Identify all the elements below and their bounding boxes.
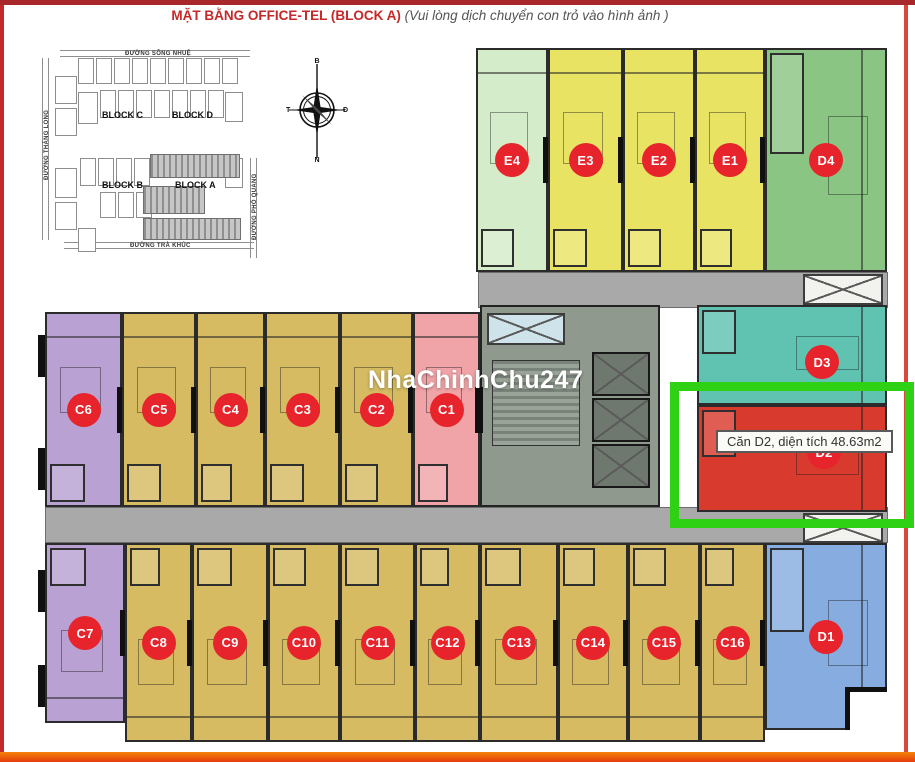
unit-bathroom bbox=[418, 464, 448, 502]
unit-c2[interactable]: C2 bbox=[340, 312, 413, 507]
unit-balcony-line bbox=[124, 336, 194, 338]
unit-label-badge: D4 bbox=[809, 143, 843, 177]
unit-e4[interactable]: E4 bbox=[476, 48, 548, 272]
unit-bathroom bbox=[50, 548, 86, 586]
unit-c5[interactable]: C5 bbox=[122, 312, 196, 507]
unit-label-badge: C2 bbox=[360, 393, 394, 427]
unit-bathroom bbox=[201, 464, 232, 502]
unit-c4[interactable]: C4 bbox=[196, 312, 265, 507]
unit-label-badge: C1 bbox=[430, 393, 464, 427]
unit-balcony-line bbox=[560, 716, 626, 718]
unit-c6[interactable]: C6 bbox=[45, 312, 122, 507]
unit-balcony-line bbox=[702, 716, 763, 718]
unit-balcony-line bbox=[47, 697, 123, 699]
unit-c16[interactable]: C16 bbox=[700, 543, 765, 742]
unit-label-badge: C13 bbox=[502, 626, 536, 660]
shaft-hatch bbox=[487, 313, 565, 345]
unit-label-badge: C8 bbox=[142, 626, 176, 660]
unit-bathroom bbox=[197, 548, 232, 586]
d1-notch bbox=[845, 687, 887, 730]
unit-c11[interactable]: C11 bbox=[340, 543, 415, 742]
unit-c3[interactable]: C3 bbox=[265, 312, 340, 507]
unit-label-badge: C14 bbox=[576, 626, 610, 660]
unit-label-badge: C11 bbox=[361, 626, 395, 660]
unit-c7[interactable]: C7 bbox=[45, 543, 125, 723]
unit-label-badge: C4 bbox=[214, 393, 248, 427]
unit-c13[interactable]: C13 bbox=[480, 543, 558, 742]
unit-c10[interactable]: C10 bbox=[268, 543, 340, 742]
unit-balcony-line bbox=[482, 716, 556, 718]
unit-bathroom bbox=[270, 464, 304, 502]
elevator-shaft bbox=[592, 352, 650, 396]
unit-bathroom bbox=[705, 548, 734, 586]
unit-bathroom bbox=[130, 548, 160, 586]
unit-label-badge: E4 bbox=[495, 143, 529, 177]
unit-label-badge: C12 bbox=[431, 626, 465, 660]
unit-label-badge: E1 bbox=[713, 143, 747, 177]
unit-label-badge: C5 bbox=[142, 393, 176, 427]
unit-label-badge: C15 bbox=[647, 626, 681, 660]
unit-highlight-box bbox=[670, 382, 914, 528]
unit-bathroom bbox=[633, 548, 666, 586]
unit-balcony-line bbox=[625, 72, 693, 74]
unit-label-badge: C16 bbox=[716, 626, 750, 660]
unit-balcony-line bbox=[478, 72, 546, 74]
unit-balcony-line bbox=[550, 72, 621, 74]
unit-bathroom bbox=[345, 548, 379, 586]
unit-balcony-line bbox=[267, 336, 338, 338]
unit-bathroom bbox=[700, 229, 732, 267]
unit-bathroom bbox=[553, 229, 587, 267]
unit-bathroom bbox=[420, 548, 449, 586]
unit-c14[interactable]: C14 bbox=[558, 543, 628, 742]
unit-balcony-line bbox=[198, 336, 263, 338]
unit-bathroom bbox=[50, 464, 85, 502]
unit-e2[interactable]: E2 bbox=[623, 48, 695, 272]
unit-bathroom bbox=[485, 548, 521, 586]
unit-balcony-line bbox=[342, 336, 411, 338]
unit-label-badge: E2 bbox=[642, 143, 676, 177]
elevator-shaft bbox=[592, 444, 650, 488]
unit-c9[interactable]: C9 bbox=[192, 543, 268, 742]
floorplan-page: MẶT BẰNG OFFICE-TEL (BLOCK A) (Vui lòng … bbox=[0, 0, 915, 762]
unit-label-badge: C10 bbox=[287, 626, 321, 660]
unit-label-badge: C6 bbox=[67, 393, 101, 427]
unit-balcony-line bbox=[697, 72, 763, 74]
elevator-shaft bbox=[592, 398, 650, 442]
unit-bathroom bbox=[273, 548, 306, 586]
unit-label-badge: C3 bbox=[286, 393, 320, 427]
unit-balcony-line bbox=[194, 716, 266, 718]
unit-c8[interactable]: C8 bbox=[125, 543, 192, 742]
unit-bathroom bbox=[628, 229, 661, 267]
watermark: NhaChinhChu247 bbox=[368, 366, 583, 395]
unit-tooltip: Căn D2, diện tích 48.63m2 bbox=[716, 430, 893, 453]
unit-bathroom bbox=[563, 548, 595, 586]
unit-balcony-line bbox=[342, 716, 413, 718]
unit-balcony-line bbox=[127, 716, 190, 718]
unit-bathroom bbox=[127, 464, 161, 502]
unit-label-badge: C9 bbox=[213, 626, 247, 660]
unit-label-badge: D1 bbox=[809, 620, 843, 654]
shaft-hatch bbox=[803, 274, 883, 305]
unit-c1[interactable]: C1 bbox=[413, 312, 480, 507]
unit-e1[interactable]: E1 bbox=[695, 48, 765, 272]
unit-bathroom bbox=[702, 310, 736, 354]
unit-e3[interactable]: E3 bbox=[548, 48, 623, 272]
unit-balcony-line bbox=[417, 716, 478, 718]
unit-bathroom bbox=[770, 53, 804, 154]
unit-bathroom bbox=[481, 229, 514, 267]
unit-label-badge: E3 bbox=[569, 143, 603, 177]
unit-balcony-line bbox=[415, 336, 478, 338]
unit-balcony-line bbox=[630, 716, 698, 718]
unit-balcony-line bbox=[270, 716, 338, 718]
unit-bathroom bbox=[770, 548, 804, 632]
unit-label-badge: C7 bbox=[68, 616, 102, 650]
unit-d4[interactable]: D4 bbox=[765, 48, 887, 272]
unit-bathroom bbox=[345, 464, 378, 502]
unit-c12[interactable]: C12 bbox=[415, 543, 480, 742]
unit-c15[interactable]: C15 bbox=[628, 543, 700, 742]
unit-label-badge: D3 bbox=[805, 345, 839, 379]
unit-balcony-line bbox=[47, 336, 120, 338]
